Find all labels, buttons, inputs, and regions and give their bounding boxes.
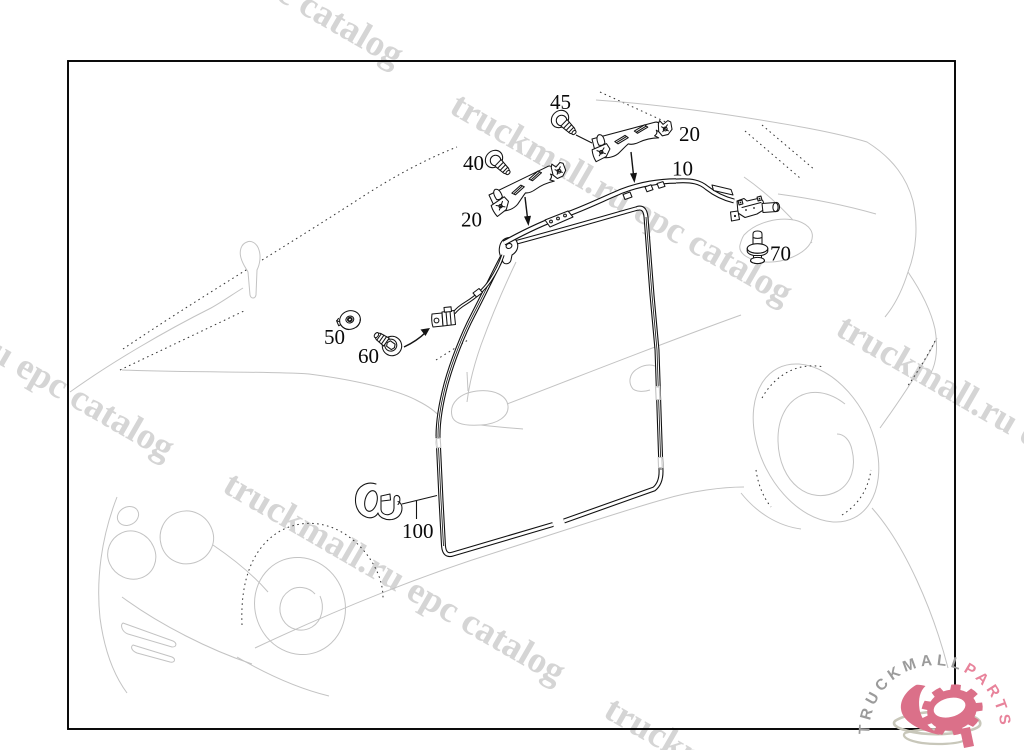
svg-text:40: 40 [463, 151, 484, 175]
svg-text:45: 45 [550, 90, 571, 114]
svg-text:50: 50 [324, 325, 345, 349]
svg-text:20: 20 [679, 122, 700, 146]
svg-text:60: 60 [358, 344, 379, 368]
svg-text:10: 10 [672, 157, 693, 181]
svg-text:100: 100 [402, 519, 434, 543]
svg-text:70: 70 [770, 242, 791, 266]
svg-text:20: 20 [461, 208, 482, 232]
